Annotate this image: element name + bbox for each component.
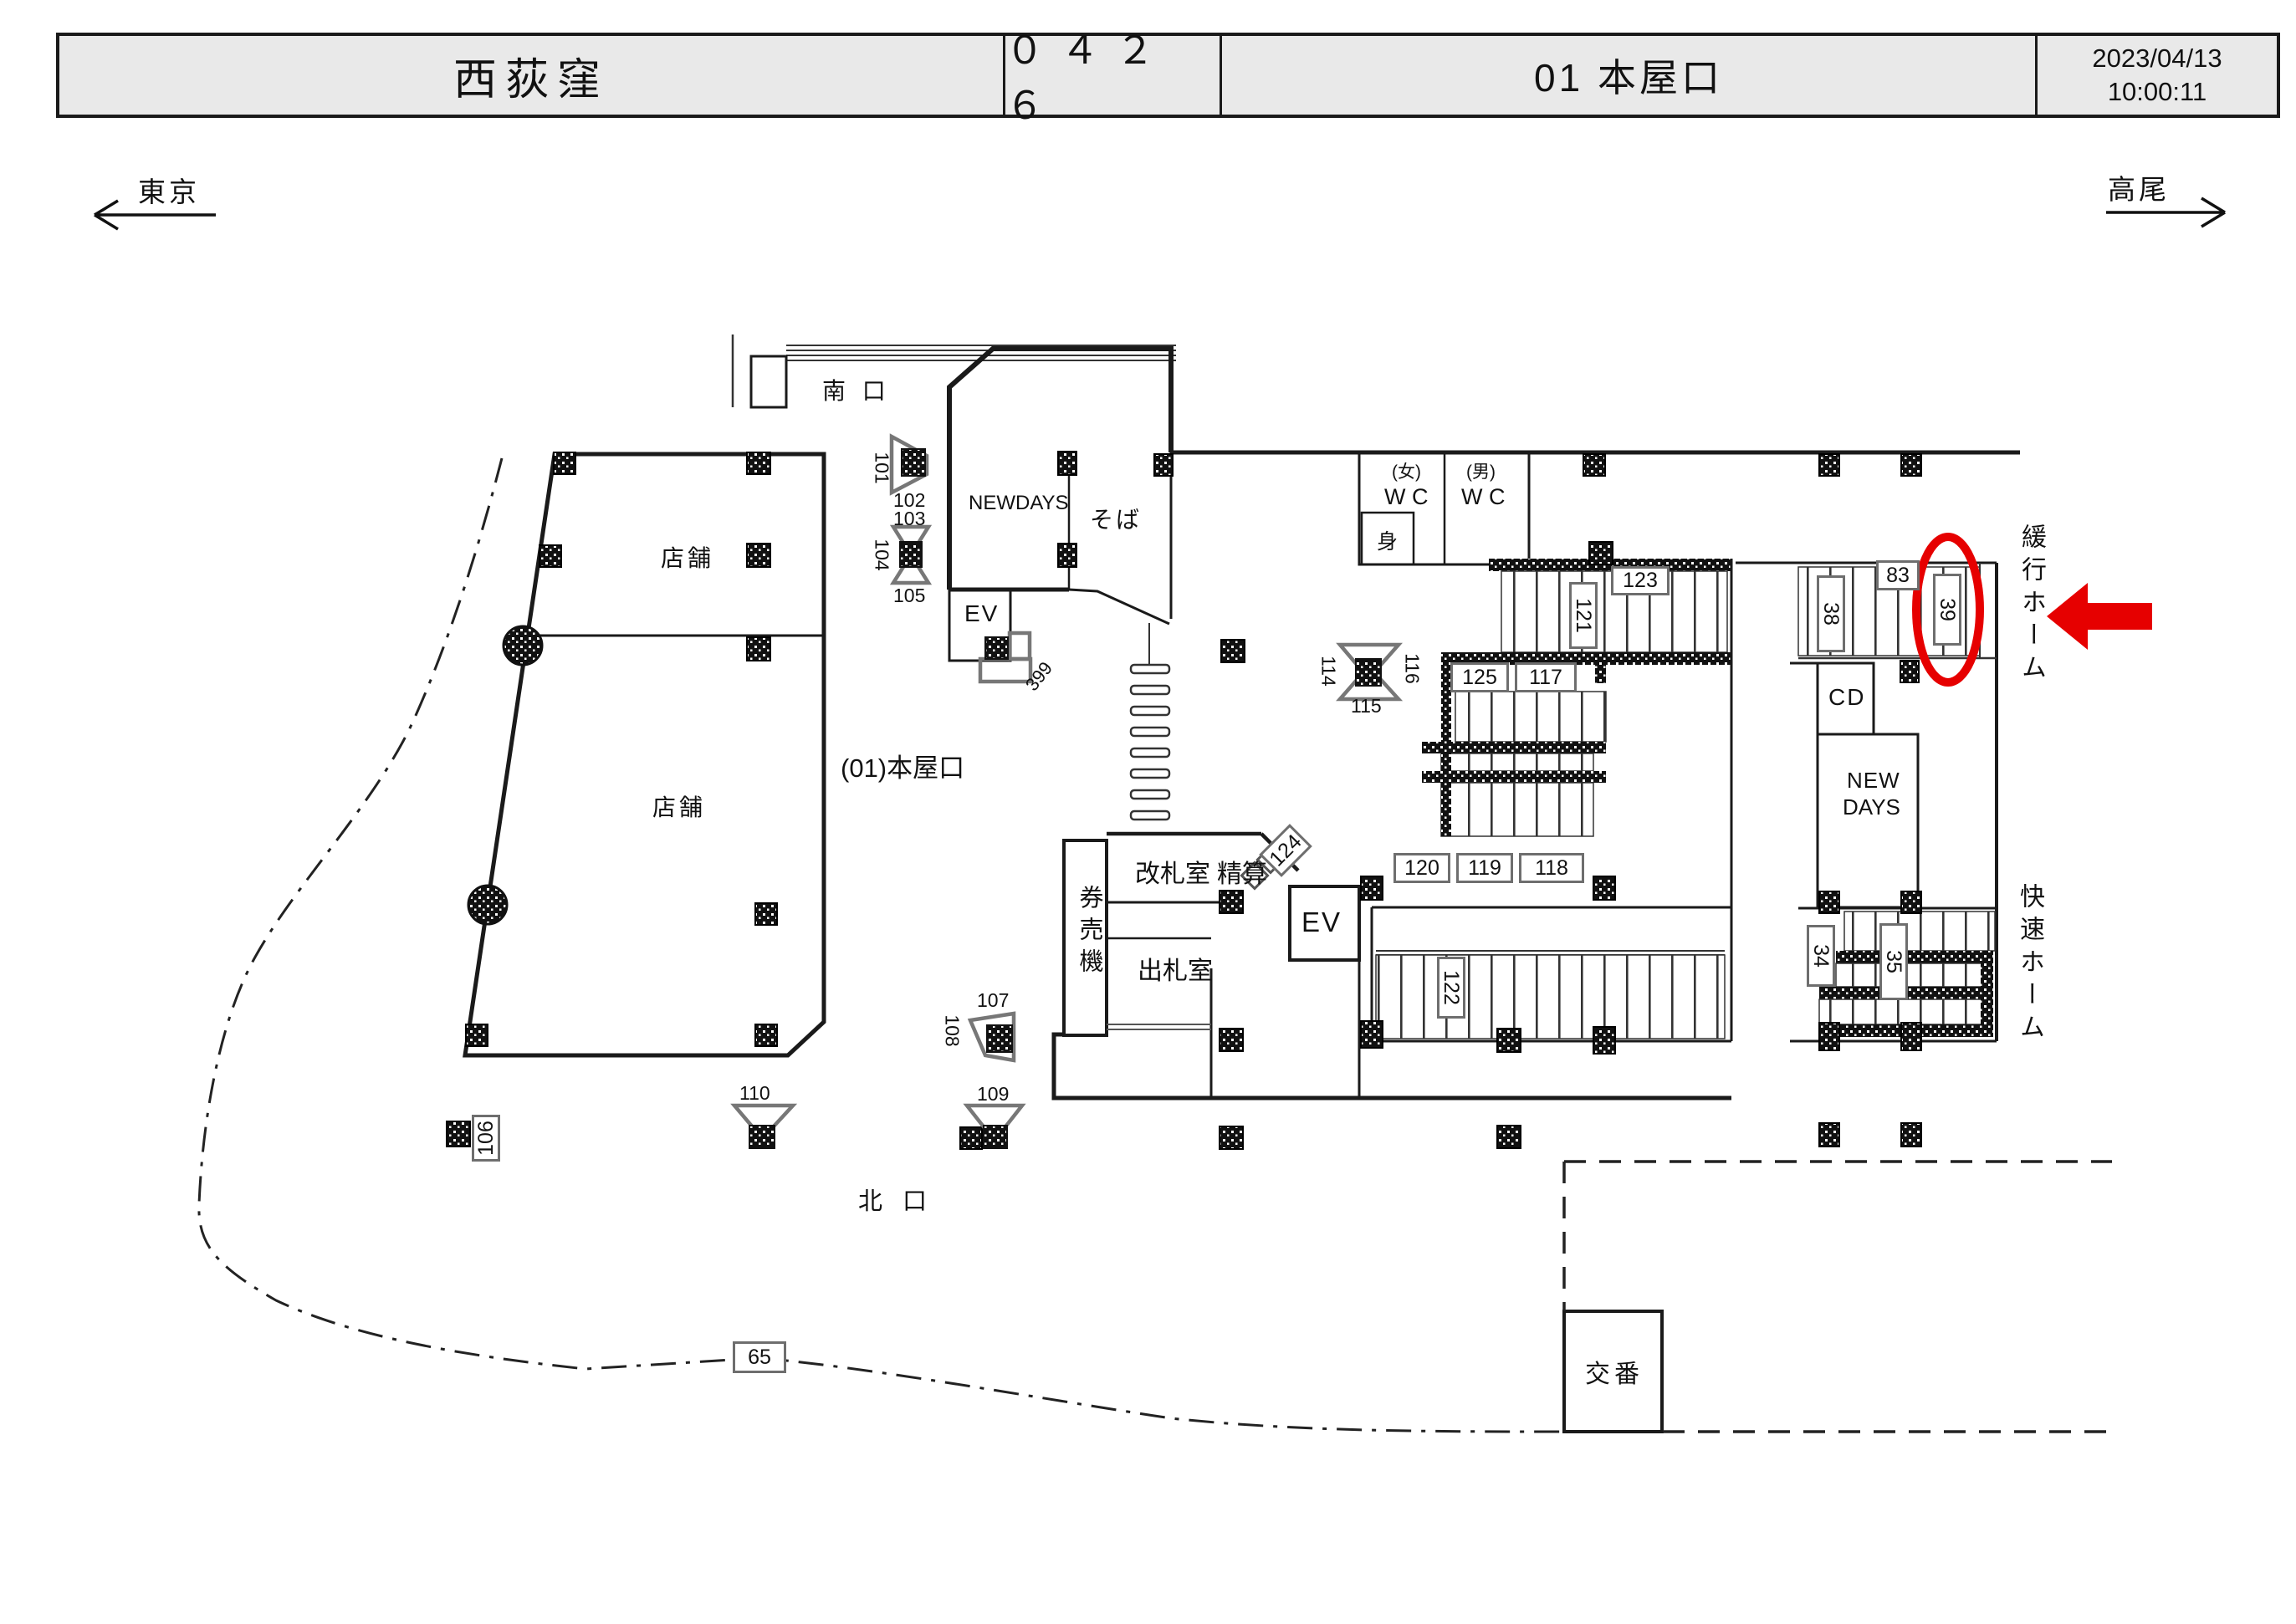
camera-122-box: 122 — [1437, 957, 1465, 1019]
north-exit-label: 北 口 — [858, 1182, 933, 1217]
timestamp: 2023/04/13 10:00:11 — [2038, 36, 2277, 115]
camera-105-label: 105 — [893, 585, 925, 607]
station-code: ０４２６ — [1005, 36, 1222, 115]
fitting-room-label: 身 — [1377, 525, 1398, 555]
camera-104-label: 104 — [871, 530, 893, 580]
local-platform-label: 緩行ホーム — [2012, 523, 2049, 724]
wc-men-label: W C — [1461, 484, 1505, 510]
camera-110-label: 110 — [739, 1082, 770, 1105]
wc-women-tag: (女) — [1392, 458, 1421, 483]
map-title: 01 本屋口 — [1222, 36, 2038, 115]
police-box-boundary — [1564, 1162, 2112, 1432]
ticket-gate-lanes — [1131, 623, 1169, 820]
lower-corridor-stair — [1372, 907, 1731, 1041]
camera-39-box: 39 — [1933, 574, 1961, 646]
ticket-office-label: 出札室 — [1138, 950, 1213, 987]
camera-108-label: 108 — [941, 1006, 964, 1056]
gate-office-label: 改札室 — [1135, 853, 1210, 890]
ticket-machines-label: 券売機 — [1071, 885, 1107, 1027]
camera-114-label: 114 — [1317, 646, 1340, 697]
fare-adjustment-label: 精算 — [1217, 853, 1267, 890]
camera-101-label: 101 — [871, 443, 893, 493]
camera-38-box: 38 — [1817, 575, 1845, 652]
camera-83-box: 83 — [1876, 560, 1920, 590]
camera-107-label: 107 — [977, 989, 1009, 1012]
camera-65-box: 65 — [733, 1341, 786, 1373]
south-entrance-structure — [751, 356, 786, 407]
south-entrance-canopy — [733, 335, 1176, 407]
newdays-store-label: NEWDAYS — [969, 492, 1069, 515]
cd-corner-label: CD — [1828, 684, 1865, 711]
south-exit-label: 南 口 — [822, 373, 891, 406]
highlight-arrow — [2047, 583, 2152, 650]
map-area-label: (01)本屋口 — [841, 747, 964, 784]
station-name: 西荻窪 — [59, 36, 1005, 115]
camera-123-box: 123 — [1611, 566, 1670, 595]
camera-35-box: 35 — [1879, 923, 1908, 1000]
camera-106-box: 106 — [472, 1115, 500, 1162]
station-floorplan-page: 西荻窪 ０４２６ 01 本屋口 2023/04/13 10:00:11 東京 高… — [0, 0, 2296, 1624]
camera-120-box: 120 — [1393, 853, 1450, 883]
direction-west-label: 東京 — [138, 170, 200, 210]
time: 10:00:11 — [2108, 75, 2207, 109]
elevator-lower-label: EV — [1301, 906, 1342, 938]
camera-34-box: 34 — [1807, 925, 1835, 987]
elevator-upper-label: EV — [964, 600, 999, 627]
newdays-platform-label-2: DAYS — [1843, 794, 1900, 820]
camera-118-box: 118 — [1519, 853, 1584, 883]
soba-shop-label: そば — [1090, 502, 1142, 535]
wc-men-tag: (男) — [1466, 458, 1496, 483]
floorplan-drawing — [0, 0, 2296, 1624]
camera-117-box: 117 — [1515, 662, 1577, 692]
rapid-platform-label: 快速ホーム — [2011, 883, 2048, 1084]
date: 2023/04/13 — [2092, 42, 2222, 75]
shop-lower-label: 店舗 — [652, 789, 706, 823]
newdays-platform-label-1: NEW — [1847, 768, 1900, 794]
camera-119-box: 119 — [1456, 853, 1513, 883]
shop-upper-label: 店舗 — [661, 540, 714, 574]
camera-116-label: 116 — [1401, 644, 1424, 694]
direction-east-label: 高尾 — [2108, 167, 2170, 207]
camera-121-box: 121 — [1569, 582, 1598, 649]
camera-103-label: 103 — [893, 508, 925, 530]
camera-110-icon — [734, 1106, 793, 1127]
title-bar: 西荻窪 ０４２６ 01 本屋口 2023/04/13 10:00:11 — [56, 33, 2280, 118]
camera-125-box: 125 — [1450, 662, 1509, 692]
camera-115-label: 115 — [1351, 695, 1382, 718]
camera-109-label: 109 — [977, 1083, 1009, 1106]
wc-women-label: W C — [1384, 484, 1428, 510]
police-box-label: 交番 — [1585, 1353, 1644, 1390]
